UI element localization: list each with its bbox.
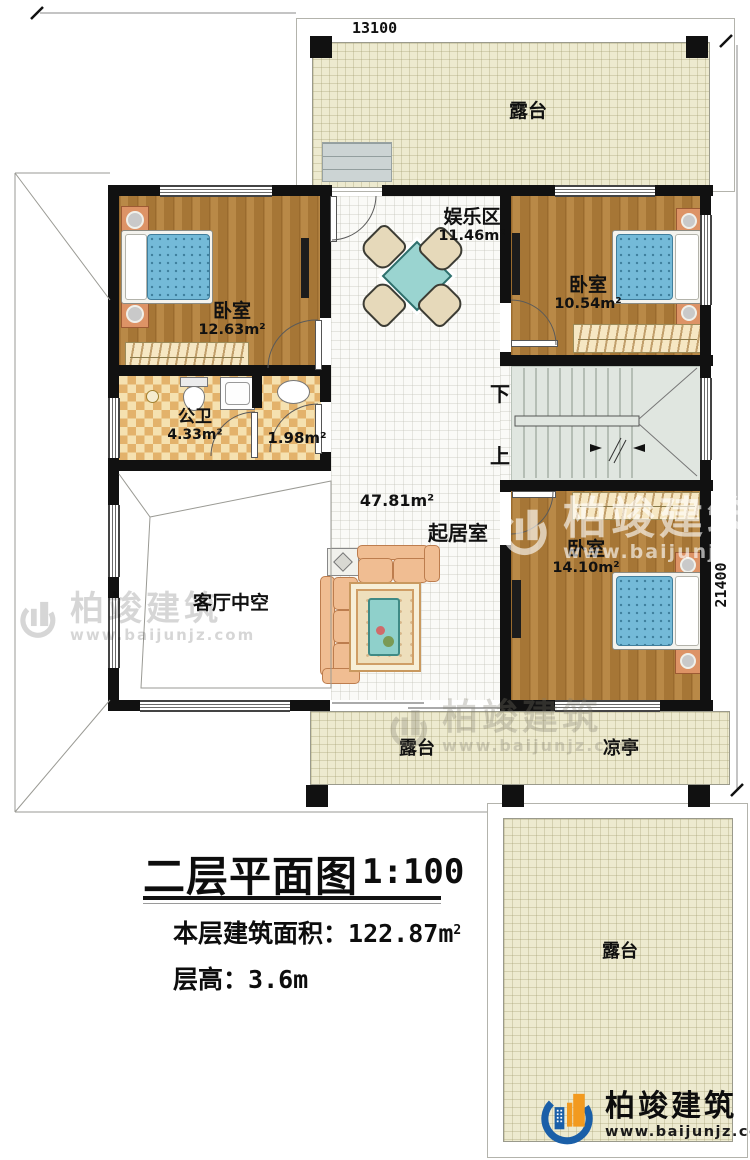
room-name: 凉亭 <box>561 738 681 759</box>
floor-area-sup: 2 <box>453 923 461 938</box>
room-name: 客厅中空 <box>161 592 301 614</box>
room-label-void: 客厅中空 <box>161 592 301 614</box>
window <box>108 398 120 458</box>
door-leaf <box>330 196 337 242</box>
wall <box>320 376 331 402</box>
watermark-logo-icon <box>16 595 62 641</box>
brand-name: 柏竣建筑 <box>605 1092 750 1122</box>
room-name: 起居室 <box>398 522 518 546</box>
wall <box>500 480 713 491</box>
room-label-terrace-top: 露台 <box>468 100 588 122</box>
brand-logo: 柏竣建筑 www.baijunjz.com <box>536 1085 750 1147</box>
room-label-washroom: 1.98m² <box>257 430 337 448</box>
wall <box>108 577 119 598</box>
wall <box>382 185 555 196</box>
room-label-pavilion: 凉亭 <box>561 738 681 759</box>
sink <box>277 380 310 404</box>
room-name: 卧室 <box>528 274 648 296</box>
sliding-door <box>330 700 500 711</box>
brand-url: www.baijunjz.com <box>605 1125 750 1140</box>
sofa-cushion <box>358 558 393 583</box>
title-underline <box>143 896 441 900</box>
room-area: 12.63m² <box>172 322 292 339</box>
window <box>108 505 120 577</box>
floor-area-line: 本层建筑面积：122.87m2 <box>173 914 461 950</box>
column <box>306 785 328 807</box>
wall <box>660 700 713 711</box>
window <box>140 700 290 712</box>
column <box>686 36 708 58</box>
void-outline <box>119 474 331 688</box>
sofa-armrest <box>424 545 440 582</box>
window <box>700 378 712 460</box>
dimension-right: 21400 <box>712 540 730 630</box>
wall <box>500 355 713 366</box>
bed <box>612 572 702 650</box>
room-name: 卧室 <box>172 300 292 322</box>
room-area: 4.33m² <box>145 427 245 444</box>
stairs-up-label: 上 <box>490 440 510 469</box>
room-area: 14.10m² <box>526 560 646 577</box>
floor-height-value: 3.6m <box>248 965 308 994</box>
shower <box>220 377 255 410</box>
room-label-living-area: 47.81m² <box>337 492 457 511</box>
title-underline-thin <box>143 903 441 904</box>
room-label-terrace-br: 露台 <box>560 941 680 962</box>
room-area: 11.46m² <box>412 228 532 245</box>
floor-area-label: 本层建筑面积： <box>173 919 348 948</box>
floor-plan: 露台 娱乐区 11.46m² 卧室 12.63m² 卧室 10.54m² 公卫 … <box>0 0 750 1160</box>
dimension-top: 13100 <box>352 19 397 37</box>
column <box>688 785 710 807</box>
room-name: 娱乐区 <box>412 206 532 228</box>
door-leaf <box>512 491 556 498</box>
column <box>310 36 332 58</box>
wall <box>500 545 511 711</box>
window <box>555 185 655 197</box>
brand-logo-icon <box>536 1085 598 1147</box>
room-label-entertainment: 娱乐区 11.46m² <box>412 206 532 246</box>
wall <box>108 460 331 471</box>
wall <box>108 365 331 376</box>
room-label-bathroom: 公卫 4.33m² <box>145 407 245 444</box>
plan-title: 二层平面图 <box>143 843 358 904</box>
window <box>700 215 712 305</box>
room-label-bedroom-bottom: 卧室 14.10m² <box>526 538 646 578</box>
watermark-url: www.baijunjz.com <box>70 628 255 643</box>
wall <box>252 376 262 408</box>
stairs-area <box>511 366 702 482</box>
terrace-steps <box>322 142 392 182</box>
wall <box>700 460 711 711</box>
wall <box>500 480 511 492</box>
nightstand <box>675 648 701 674</box>
wall <box>700 305 711 378</box>
window <box>160 185 272 197</box>
ceiling-lamp <box>146 390 159 403</box>
door-leaf <box>315 320 322 370</box>
room-label-bedroom-right: 卧室 10.54m² <box>528 274 648 314</box>
room-area: 1.98m² <box>257 430 337 448</box>
room-label-living: 起居室 <box>398 522 518 546</box>
room-name: 露台 <box>357 738 477 759</box>
bed <box>121 230 213 304</box>
wall <box>108 700 140 711</box>
stairs-down-label: 下 <box>490 378 510 407</box>
room-name: 露台 <box>468 100 588 122</box>
wardrobe <box>572 492 700 520</box>
wardrobe <box>573 324 702 353</box>
room-name: 卧室 <box>526 538 646 560</box>
floor-height-label: 层高： <box>173 965 248 994</box>
side-table <box>327 548 359 576</box>
floor-height-line: 层高：3.6m <box>173 960 308 996</box>
floor-area-value: 122.87m <box>348 919 453 948</box>
room-area: 47.81m² <box>337 492 457 511</box>
tv <box>301 238 309 298</box>
tv <box>512 580 521 638</box>
room-name: 公卫 <box>145 407 245 427</box>
wall <box>290 700 330 711</box>
column <box>502 785 524 807</box>
room-label-bedroom-left: 卧室 12.63m² <box>172 300 292 340</box>
coffee-table <box>368 598 400 656</box>
wall <box>700 185 711 215</box>
nightstand <box>121 300 149 328</box>
door-leaf <box>511 340 558 347</box>
brand-text: 柏竣建筑 www.baijunjz.com <box>605 1092 750 1140</box>
window <box>555 700 660 712</box>
window <box>108 598 120 668</box>
room-area: 10.54m² <box>528 296 648 313</box>
room-label-terrace-bottom: 露台 <box>357 738 477 759</box>
room-name: 露台 <box>560 941 680 962</box>
plan-scale: 1:100 <box>362 852 464 892</box>
sofa-cushion <box>393 558 428 583</box>
